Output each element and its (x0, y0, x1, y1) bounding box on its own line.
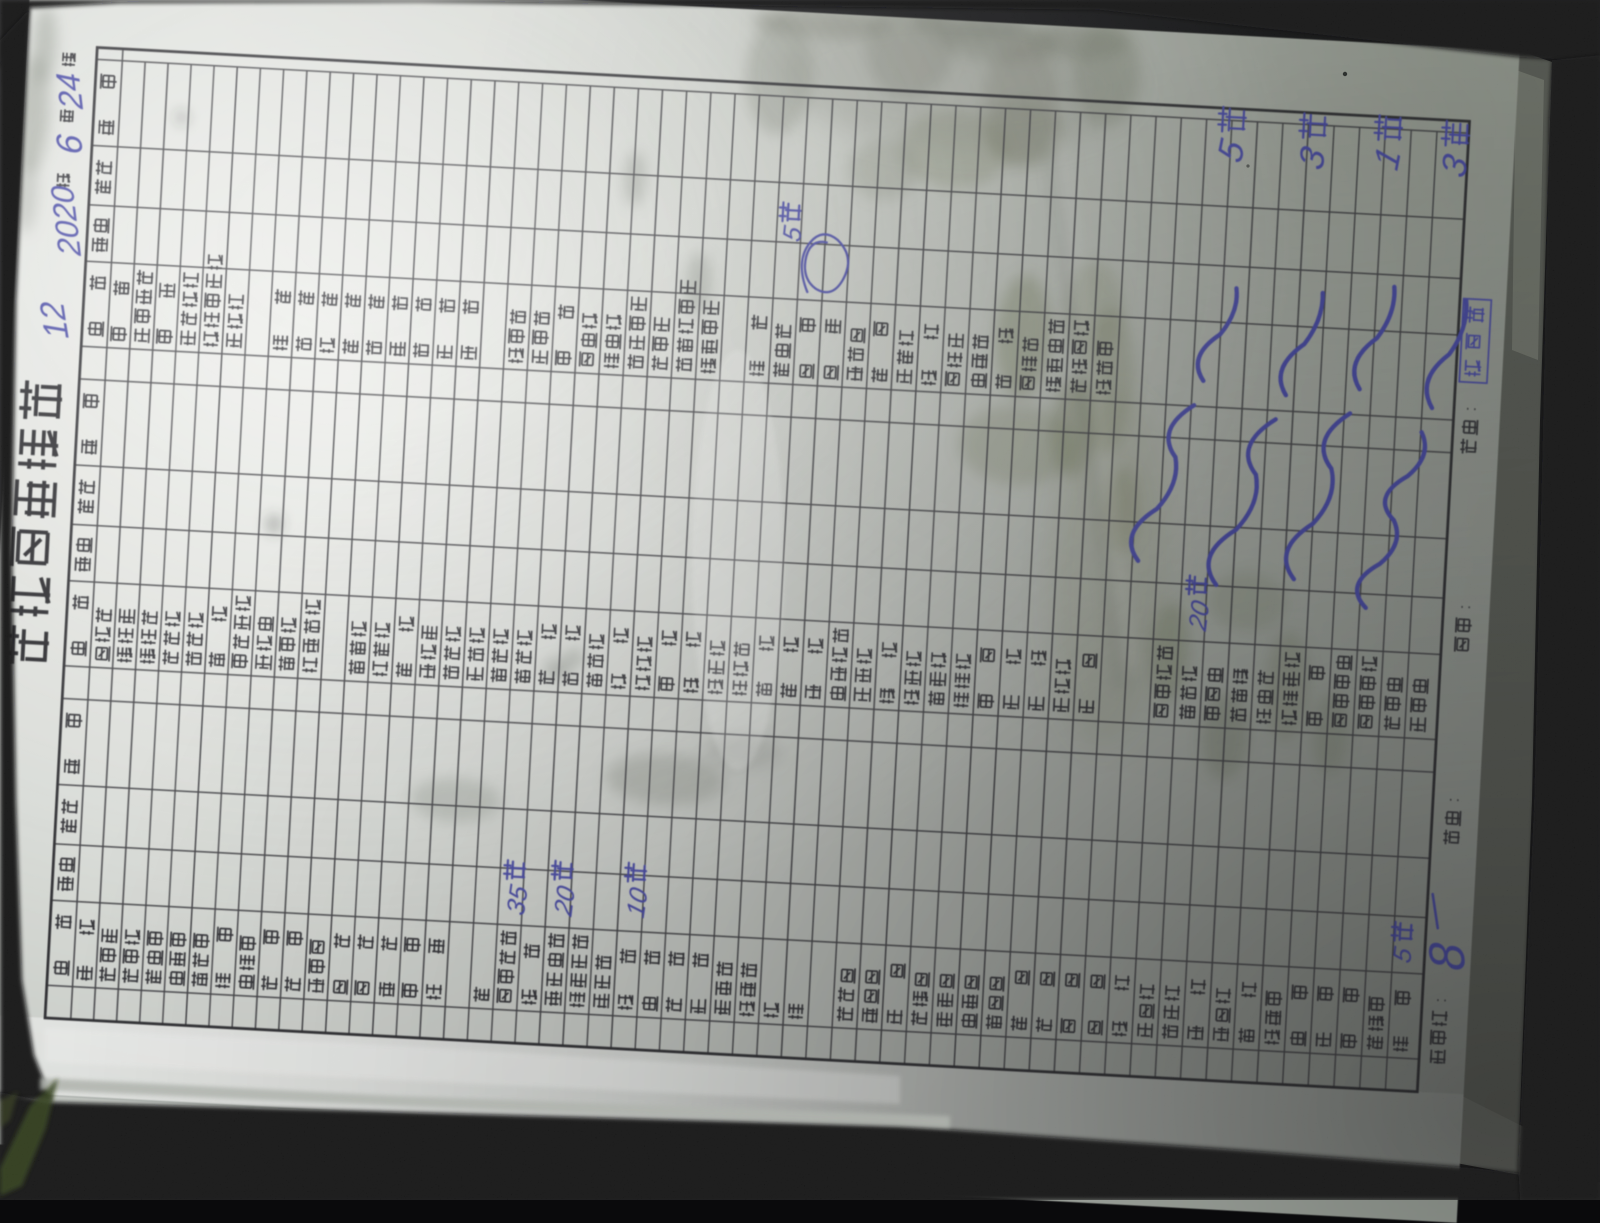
svg-text:12: 12 (33, 301, 77, 339)
svg-text:8: 8 (1418, 941, 1477, 972)
svg-text:6: 6 (49, 133, 91, 155)
svg-text:24: 24 (48, 73, 90, 111)
